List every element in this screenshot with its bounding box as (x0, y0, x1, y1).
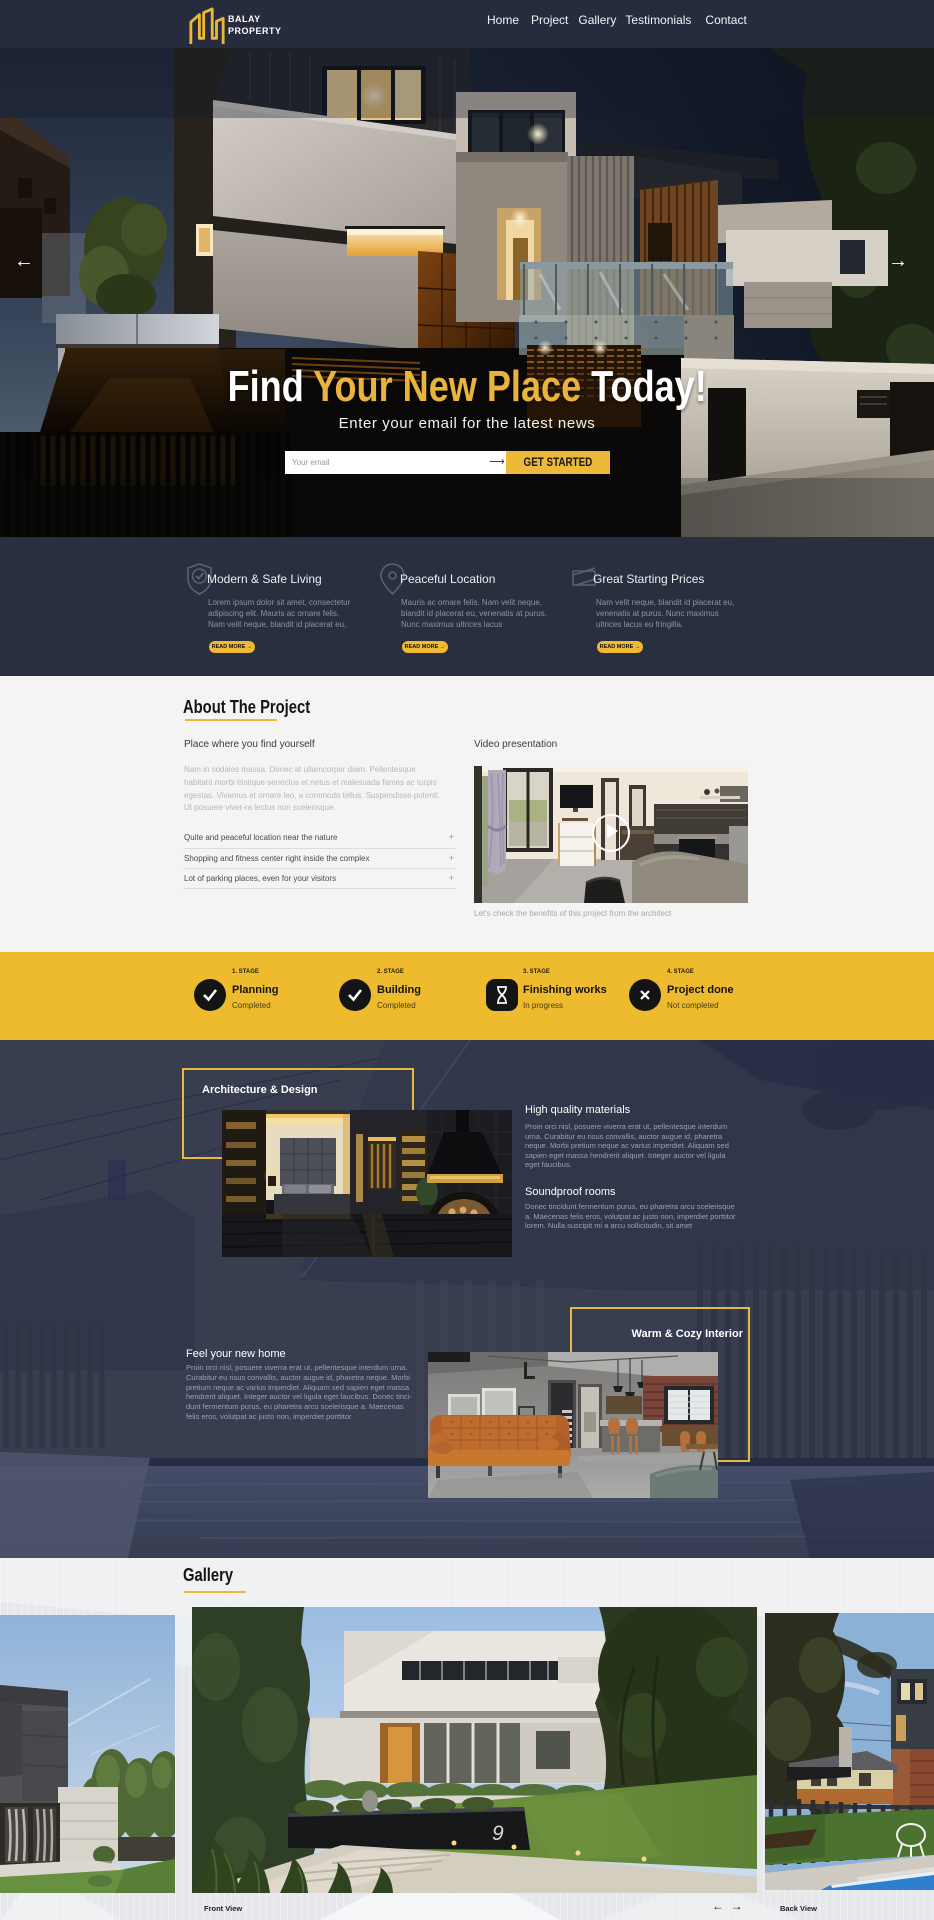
svg-text:9: 9 (492, 1822, 504, 1845)
